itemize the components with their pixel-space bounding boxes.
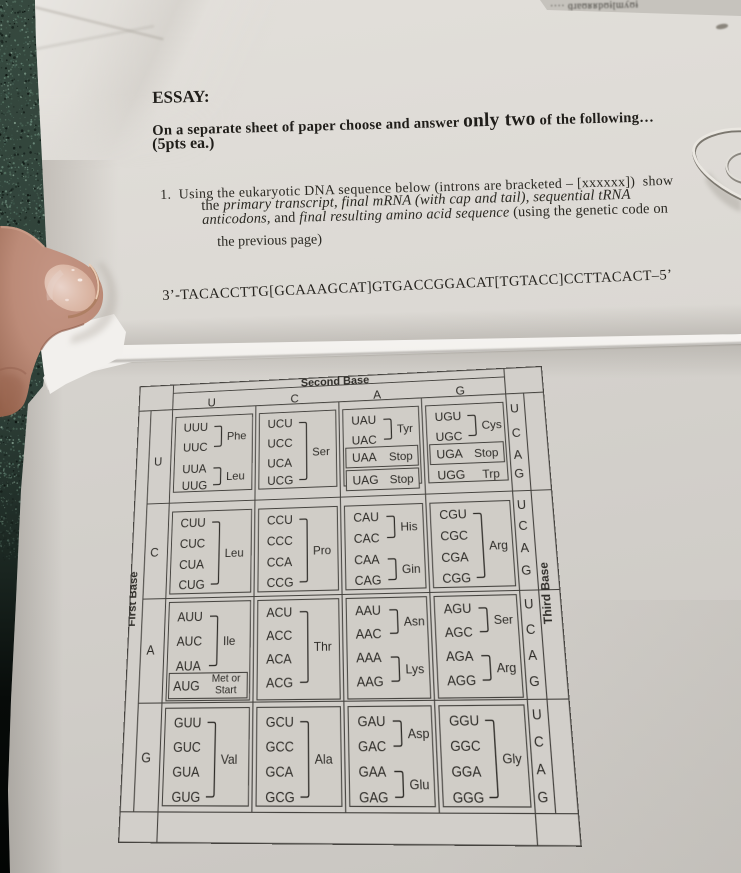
svg-text:UCU: UCU: [268, 418, 293, 431]
svg-text:CGU: CGU: [439, 508, 467, 522]
svg-text:AAG: AAG: [357, 675, 384, 690]
svg-text:U: U: [510, 403, 520, 416]
svg-text:UGC: UGC: [435, 431, 463, 445]
svg-text:AUG: AUG: [173, 680, 200, 695]
svg-text:U: U: [532, 708, 543, 723]
svg-text:CAA: CAA: [354, 554, 380, 568]
svg-text:UCC: UCC: [267, 438, 292, 451]
svg-text:Arg: Arg: [496, 661, 517, 676]
svg-text:Stop: Stop: [389, 450, 414, 464]
svg-text:A: A: [528, 649, 538, 664]
svg-text:AUU: AUU: [177, 611, 203, 625]
svg-text:ACC: ACC: [266, 630, 292, 644]
svg-text:UGA: UGA: [436, 448, 463, 462]
svg-text:A: A: [146, 644, 155, 658]
svg-text:U: U: [517, 499, 527, 513]
svg-text:UUA: UUA: [182, 463, 207, 476]
svg-text:CUU: CUU: [180, 517, 206, 531]
svg-text:GGG: GGG: [452, 791, 484, 807]
svg-text:C: C: [518, 520, 528, 534]
svg-text:CGG: CGG: [442, 572, 472, 587]
svg-text:CUA: CUA: [179, 559, 204, 573]
svg-text:A: A: [513, 449, 522, 462]
svg-text:Leu: Leu: [226, 470, 245, 483]
svg-text:Ala: Ala: [315, 753, 334, 768]
svg-text:GAU: GAU: [357, 715, 385, 730]
svg-text:UGG: UGG: [437, 469, 466, 483]
svg-text:UAG: UAG: [352, 474, 378, 488]
svg-text:Lys: Lys: [405, 663, 424, 678]
svg-text:UGU: UGU: [434, 411, 461, 425]
svg-text:UAU: UAU: [351, 415, 376, 428]
svg-text:Thr: Thr: [314, 640, 333, 654]
svg-text:C: C: [511, 427, 521, 440]
svg-text:UUG: UUG: [182, 480, 208, 494]
svg-text:Arg: Arg: [489, 539, 509, 553]
svg-text:GCC: GCC: [266, 741, 294, 756]
svg-text:G: G: [141, 752, 151, 767]
svg-text:Gin: Gin: [402, 563, 421, 577]
svg-text:GUU: GUU: [174, 717, 202, 732]
svg-text:CCG: CCG: [267, 577, 294, 591]
svg-text:G: G: [529, 675, 541, 690]
svg-text:AGU: AGU: [443, 603, 471, 618]
svg-text:CCA: CCA: [267, 556, 293, 570]
svg-text:CAG: CAG: [355, 574, 382, 588]
svg-text:CAC: CAC: [354, 532, 380, 546]
svg-text:GCA: GCA: [265, 766, 293, 781]
svg-text:GUA: GUA: [172, 766, 200, 781]
svg-text:His: His: [400, 521, 418, 535]
svg-text:A: A: [520, 542, 530, 556]
svg-text:U: U: [524, 598, 534, 612]
svg-text:UAC: UAC: [352, 434, 377, 448]
svg-text:Val: Val: [221, 753, 238, 768]
svg-text:Ile: Ile: [223, 635, 236, 649]
svg-text:G: G: [521, 564, 532, 578]
svg-text:CUC: CUC: [180, 538, 206, 552]
svg-text:GAA: GAA: [358, 765, 386, 780]
svg-text:G: G: [514, 468, 525, 481]
svg-text:AAC: AAC: [356, 628, 382, 643]
svg-text:CGC: CGC: [440, 530, 468, 544]
svg-text:C: C: [290, 393, 298, 405]
svg-text:GGU: GGU: [449, 714, 480, 729]
svg-text:Ser: Ser: [312, 446, 331, 459]
svg-text:A: A: [536, 763, 547, 779]
svg-text:G: G: [455, 385, 465, 398]
svg-text:G: G: [537, 791, 549, 807]
svg-text:UCA: UCA: [267, 458, 292, 472]
svg-text:ACA: ACA: [266, 653, 292, 668]
svg-text:AAU: AAU: [355, 604, 381, 618]
svg-text:UCG: UCG: [267, 475, 293, 489]
svg-text:Tyr: Tyr: [397, 423, 414, 436]
svg-text:C: C: [150, 547, 159, 560]
svg-text:AUA: AUA: [176, 660, 202, 674]
svg-text:Leu: Leu: [225, 547, 244, 561]
svg-text:Stop: Stop: [390, 473, 415, 487]
svg-text:AGA: AGA: [446, 650, 474, 665]
svg-text:UUU: UUU: [183, 422, 208, 435]
svg-text:Ser: Ser: [493, 613, 514, 628]
svg-text:Asn: Asn: [404, 615, 426, 629]
svg-text:Start: Start: [215, 683, 237, 696]
svg-text:C: C: [533, 735, 544, 750]
svg-text:Trp: Trp: [482, 468, 501, 482]
svg-text:GAG: GAG: [359, 791, 389, 807]
svg-text:AGG: AGG: [447, 674, 477, 689]
svg-text:CCU: CCU: [267, 514, 293, 528]
svg-text:CGA: CGA: [441, 551, 469, 565]
svg-text:CCC: CCC: [267, 535, 293, 549]
svg-text:U: U: [207, 397, 215, 409]
svg-text:CAU: CAU: [353, 511, 379, 525]
svg-text:GCG: GCG: [265, 791, 295, 806]
svg-text:AUC: AUC: [176, 635, 202, 649]
svg-text:Pro: Pro: [313, 545, 332, 559]
svg-text:Gly: Gly: [502, 752, 523, 767]
svg-text:GUG: GUG: [171, 791, 200, 806]
svg-text:C: C: [525, 623, 535, 638]
svg-text:Glu: Glu: [409, 778, 429, 794]
svg-text:GUC: GUC: [173, 741, 201, 756]
svg-text:UUC: UUC: [183, 442, 208, 455]
svg-text:GAC: GAC: [358, 740, 387, 755]
svg-text:Stop: Stop: [474, 447, 500, 461]
svg-text:U: U: [154, 457, 163, 470]
svg-text:ACG: ACG: [266, 677, 293, 692]
svg-text:GCU: GCU: [266, 716, 294, 731]
svg-text:AAA: AAA: [356, 652, 382, 667]
svg-text:Cys: Cys: [481, 419, 502, 432]
svg-text:Phe: Phe: [227, 430, 247, 443]
svg-text:CUG: CUG: [178, 579, 205, 593]
svg-text:AGC: AGC: [445, 626, 474, 641]
svg-text:ACU: ACU: [266, 606, 292, 620]
svg-text:UAA: UAA: [352, 452, 377, 466]
svg-text:GGC: GGC: [450, 740, 481, 755]
svg-text:GGA: GGA: [451, 765, 482, 781]
svg-text:A: A: [373, 389, 381, 402]
svg-text:Asp: Asp: [408, 727, 431, 742]
